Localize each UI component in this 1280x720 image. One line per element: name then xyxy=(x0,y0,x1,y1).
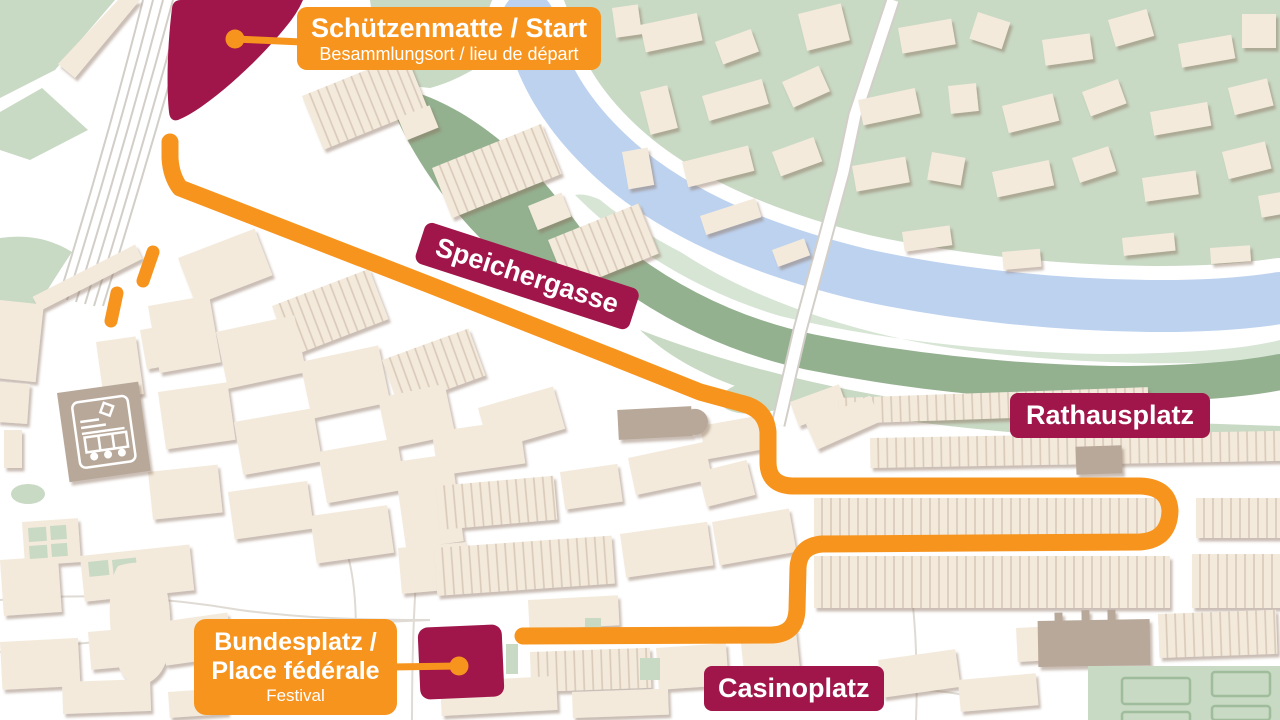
bundesplatz-label-line1: Bundesplatz / xyxy=(194,628,397,657)
bundesplatz-marker-dot xyxy=(450,657,469,676)
french-church xyxy=(617,405,708,440)
label-schuetzenmatte-start: Schützenmatte / Start Besammlungsort / l… xyxy=(297,7,601,70)
start-marker-dot xyxy=(226,30,245,49)
route-map: Schützenmatte / Start Besammlungsort / l… xyxy=(0,0,1280,720)
label-rathausplatz: Rathausplatz xyxy=(1010,393,1210,438)
start-label-subtitle: Besammlungsort / lieu de départ xyxy=(297,44,601,64)
train-station xyxy=(57,382,151,483)
city-map-canvas xyxy=(0,0,1280,720)
bundesplatz-label-line2: Place fédérale xyxy=(194,657,397,686)
bundesplatz-label-subtitle: Festival xyxy=(194,686,397,706)
rathaus-building xyxy=(1076,445,1123,475)
courtyard-building-a xyxy=(22,518,81,566)
label-casinoplatz: Casinoplatz xyxy=(704,666,884,711)
round-building xyxy=(110,563,171,685)
start-label-title: Schützenmatte / Start xyxy=(297,13,601,43)
label-bundesplatz: Bundesplatz / Place fédérale Festival xyxy=(194,619,397,715)
